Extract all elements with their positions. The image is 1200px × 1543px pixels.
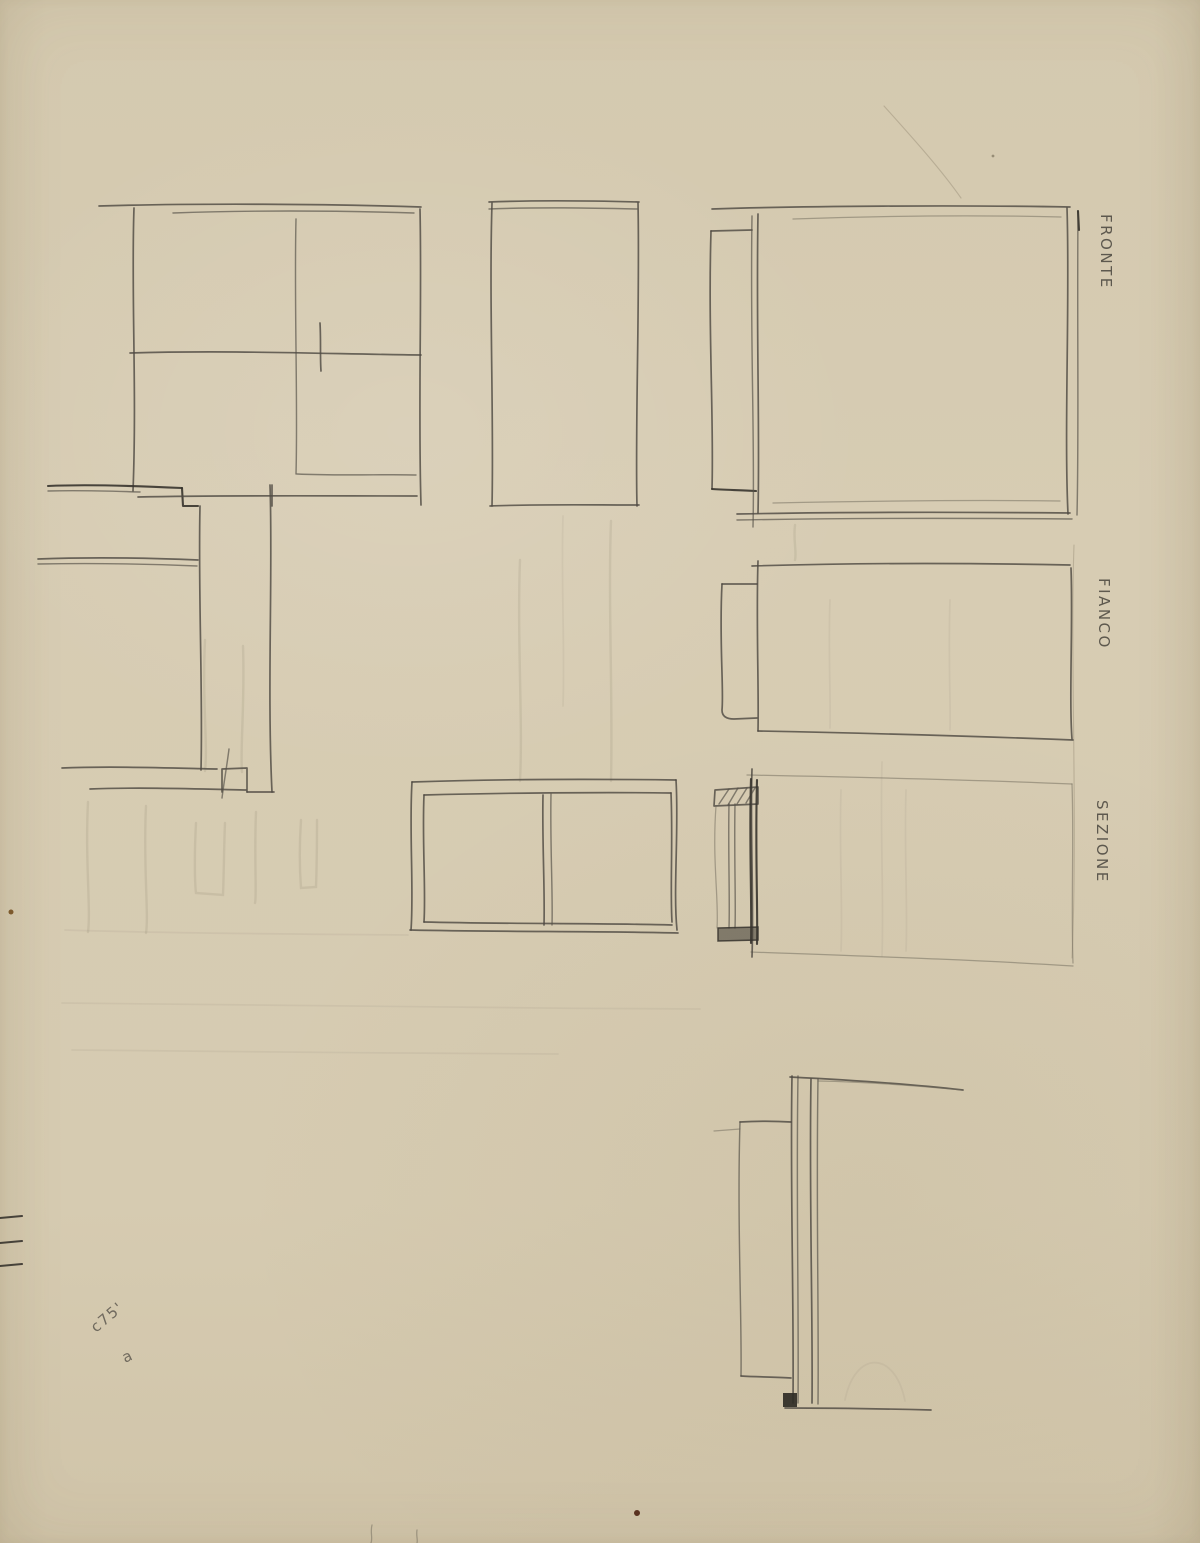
letter-note: a bbox=[119, 1346, 136, 1367]
plan-view-sketch bbox=[48, 204, 421, 506]
ghost-strokes bbox=[62, 106, 1074, 1401]
foot-block bbox=[783, 1393, 797, 1407]
paper-sheet: FRONTE FIANCO SEZIONE c75' a bbox=[0, 0, 1200, 1543]
paper-marks bbox=[0, 155, 994, 1543]
fronte-label: FRONTE bbox=[1097, 214, 1115, 290]
fianco-label: FIANCO bbox=[1095, 578, 1113, 650]
tiny-speck bbox=[992, 155, 995, 158]
corner-note: c75' bbox=[87, 1298, 127, 1336]
sezione-view-sketch bbox=[714, 769, 1073, 966]
corner-crease bbox=[884, 106, 961, 198]
fianco-view-sketch bbox=[721, 561, 1073, 740]
tall-panel-sketch bbox=[489, 201, 639, 506]
frame-panel-sketch bbox=[410, 779, 678, 933]
brown-speck bbox=[9, 910, 14, 915]
fronte-view-sketch bbox=[710, 206, 1079, 527]
edge-tick-marks bbox=[0, 1216, 22, 1266]
sezione-label: SEZIONE bbox=[1093, 800, 1111, 884]
leg-section-sketch bbox=[714, 1076, 963, 1410]
dark-speck bbox=[634, 1510, 640, 1516]
sketch-canvas: FRONTE FIANCO SEZIONE c75' a bbox=[0, 0, 1200, 1543]
section-profile bbox=[714, 779, 758, 944]
plan-detail-sketch bbox=[38, 485, 274, 798]
